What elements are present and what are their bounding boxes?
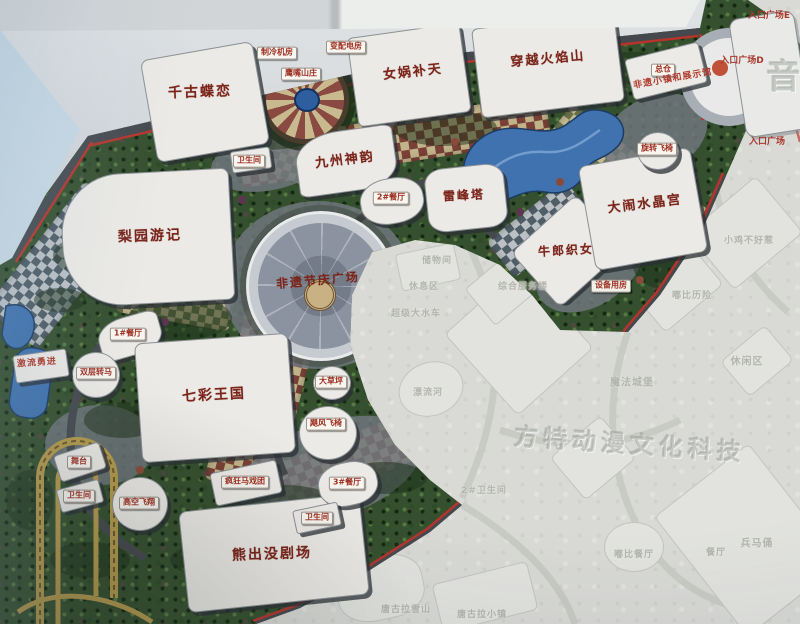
facility-label: 设备用房 (591, 280, 631, 293)
theme-park-map-photo: 千古蝶恋女娲补天穿越火焰山九州神韵雷峰塔牛郎织女大闹水晶宫梨园游记非遗节庆广场七… (0, 0, 800, 624)
facility-label: 飓风飞椅 (306, 418, 346, 431)
entrance-label: 入口广场 (749, 138, 785, 148)
attraction-label: 七彩王国 (182, 387, 247, 406)
label-layer: 千古蝶恋女娲补天穿越火焰山九州神韵雷峰塔牛郎织女大闹水晶宫梨园游记非遗节庆广场七… (0, 0, 800, 624)
attraction-label: 穿越火焰山 (510, 50, 586, 71)
facility-label: 1#餐厅 (110, 328, 146, 341)
facility-label: 变配电房 (326, 41, 366, 54)
facility-label: 卫生间 (233, 155, 265, 168)
facility-label: 高空飞翔 (119, 497, 159, 510)
entrance-label: 入口广场D (720, 57, 763, 67)
attraction-label: 熊出没剧场 (232, 546, 312, 564)
faded-label: 嘟比餐厅 (614, 551, 654, 561)
attraction-label: 大闹水晶宫 (607, 193, 683, 216)
faded-label: 唐古拉雪山 (381, 606, 431, 616)
facility-label: 卫生间 (63, 490, 95, 503)
watermark-text: 音 (767, 59, 800, 96)
facility-label: 大草坪 (315, 376, 347, 389)
faded-label: 兵马俑 (741, 539, 774, 550)
facility-label: 双层转马 (76, 367, 116, 380)
attraction-label: 千古蝶恋 (168, 84, 232, 102)
attraction-label: 雷峰塔 (443, 188, 486, 203)
facility-label: 卫生间 (6, 160, 38, 173)
faded-label: 休息区 (409, 283, 439, 293)
faded-label: 餐厅 (706, 549, 726, 559)
facility-label: 疯狂马戏团 (221, 476, 269, 489)
facility-label: 3#餐厅 (329, 477, 365, 490)
faded-label: 综合服务楼 (498, 283, 548, 293)
attraction-label: 牛郎织女 (538, 243, 595, 259)
facility-label: 卫生间 (301, 512, 333, 525)
watermark-text: 方特动漫文化科技 (513, 424, 746, 467)
facility-label: 旋转飞椅 (637, 143, 677, 156)
attraction-label: 梨园游记 (118, 228, 182, 246)
attraction-label: 非遗节庆广场 (276, 271, 361, 291)
faded-label: 唐古拉小镇 (457, 611, 507, 621)
facility-label: 2#餐厅 (373, 192, 409, 205)
faded-label: 小鸡不好惹 (724, 237, 774, 247)
faded-label: 储物间 (422, 257, 452, 267)
attraction-label: 九州神韵 (314, 150, 375, 172)
entrance-label: 入口广场E (748, 12, 790, 22)
faded-label: 漂流河 (413, 389, 443, 399)
faded-label: 魔法城堡 (610, 378, 654, 389)
attraction-label: 女娲补天 (382, 63, 443, 83)
faded-label: 超级大水车 (391, 310, 441, 320)
facility-label: 制冷机房 (257, 47, 297, 60)
note-label: 激流勇进 (17, 358, 58, 371)
faded-label: 2#卫生间 (461, 487, 507, 497)
facility-label: 舞台 (67, 456, 91, 469)
facility-label: 鹰嘴山庄 (281, 68, 321, 81)
faded-label: 休闲区 (731, 357, 764, 368)
faded-label: 嘟比历险 (672, 292, 712, 302)
